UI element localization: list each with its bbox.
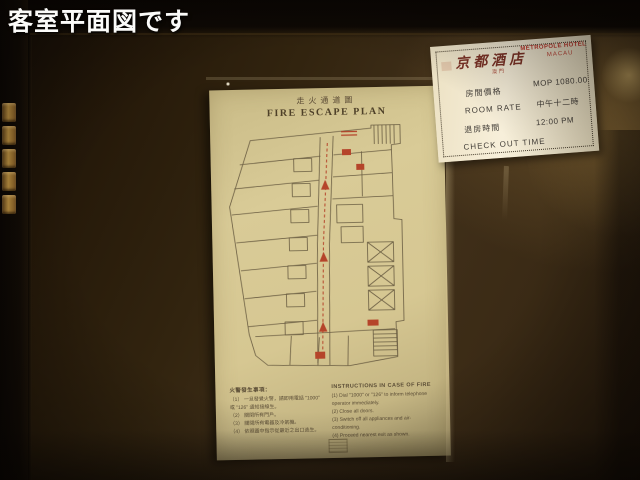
instructions-header-zh: 火警發生事項： [229, 384, 321, 394]
poster-edge-reflection [446, 150, 455, 462]
escape-arrow-icon [320, 323, 327, 331]
hinge-knuckle [2, 172, 16, 191]
glass-edge-reflection [502, 166, 509, 220]
hinge-knuckle [2, 126, 16, 145]
door-hinge-icon [2, 103, 16, 221]
photo-caption-overlay: 客室平面図です [8, 2, 190, 38]
door-frame-left [0, 0, 28, 480]
escape-arrow-icon [322, 181, 329, 189]
elevator-icon [368, 266, 394, 287]
instruction-item: （1） 一旦發覺火警，請即用電話 "1000" 或 "126" 通知接線生。 [230, 394, 322, 412]
holder-screw [226, 82, 230, 86]
plastic-holder-edge [206, 77, 452, 80]
stairs-icon [373, 334, 397, 350]
hotel-logo-icon [441, 61, 452, 71]
escape-route-marks [311, 131, 379, 358]
shadow-bottom [0, 430, 640, 480]
instructions-header-en: INSTRUCTIONS IN CASE OF FIRE [331, 382, 435, 390]
fire-escape-plan-poster: 走火通道圖 FIRE ESCAPE PLAN [209, 86, 451, 461]
room-rate-card: 京都酒店 澳門 METROPOLE HOTEL MACAU 房間價格 ROOM … [430, 35, 599, 163]
escape-arrow-icon [320, 253, 327, 261]
elevator-icon [368, 290, 394, 311]
hinge-knuckle [2, 149, 16, 168]
hotel-location-chinese: 澳門 [492, 67, 507, 75]
door-frame-line [28, 36, 32, 480]
door-frame-right [594, 130, 640, 480]
hinge-knuckle [2, 195, 16, 214]
elevator-icon [367, 242, 393, 263]
hotel-door-photo: 走火通道圖 FIRE ESCAPE PLAN [0, 0, 640, 480]
hinge-knuckle [2, 103, 16, 122]
stairs-icon [374, 125, 394, 144]
floor-plan-walls [228, 125, 405, 369]
floor-plan-drawing [223, 123, 434, 379]
